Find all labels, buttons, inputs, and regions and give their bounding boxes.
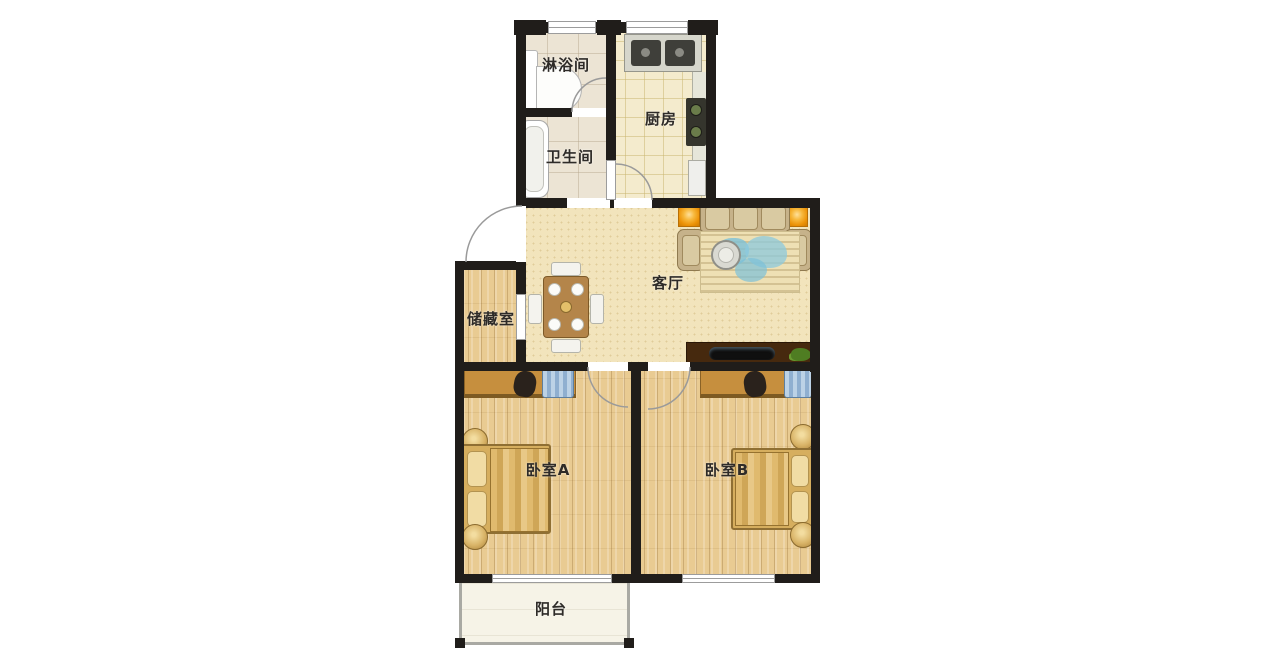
wall (706, 22, 716, 208)
dining-chair-icon (551, 339, 581, 353)
fridge-icon (688, 160, 706, 196)
wall-corner (455, 638, 465, 648)
wardrobe-icon (784, 368, 812, 398)
room-label-bedroom-a: 卧室A (502, 459, 594, 480)
room-label-bathroom: 卫生间 (524, 146, 616, 167)
kitchen-sink-counter (624, 34, 702, 72)
room-label-living: 客厅 (622, 272, 714, 293)
room-label-storage: 储藏室 (445, 308, 537, 329)
room-label-balcony: 阳台 (505, 598, 597, 619)
wall-corner (624, 638, 634, 648)
dining-table-icon (543, 276, 589, 338)
wall (811, 362, 820, 583)
room-label-kitchen: 厨房 (615, 108, 707, 129)
room-label-bedroom-b: 卧室B (681, 459, 773, 480)
window (682, 574, 775, 583)
wardrobe-icon (542, 368, 574, 398)
wall (810, 198, 820, 372)
plant-icon (791, 348, 811, 361)
wall (631, 362, 641, 583)
balcony-wall (627, 583, 630, 645)
balcony-wall (459, 583, 462, 645)
door-opening-entrance (516, 206, 526, 262)
bedside-table-icon (462, 524, 488, 550)
sink-basin-icon (631, 40, 661, 66)
wall (714, 198, 820, 208)
dining-chair-icon (590, 294, 604, 324)
room-label-shower: 淋浴间 (520, 54, 612, 75)
wall (455, 362, 464, 583)
window (626, 21, 688, 34)
door-opening-shower (572, 108, 606, 117)
door-opening-bathroom (567, 198, 610, 208)
sink-basin-icon (665, 40, 695, 66)
tv-cabinet-icon (686, 342, 812, 364)
door-opening-bedroom-a (588, 362, 628, 371)
wall (516, 266, 526, 294)
balcony-wall (459, 642, 630, 645)
dining-chair-icon (551, 262, 581, 276)
window (548, 21, 596, 34)
balcony-window (492, 574, 612, 583)
door-opening-bedroom-b (648, 362, 690, 371)
floor-plan: 淋浴间 厨房 卫生间 客厅 储藏室 卧室A 卧室B 阳台 (0, 0, 1280, 672)
coffee-table-icon (711, 240, 741, 270)
tv-icon (709, 347, 775, 360)
door-opening-kitchen (614, 198, 652, 208)
bed-icon (461, 444, 551, 534)
